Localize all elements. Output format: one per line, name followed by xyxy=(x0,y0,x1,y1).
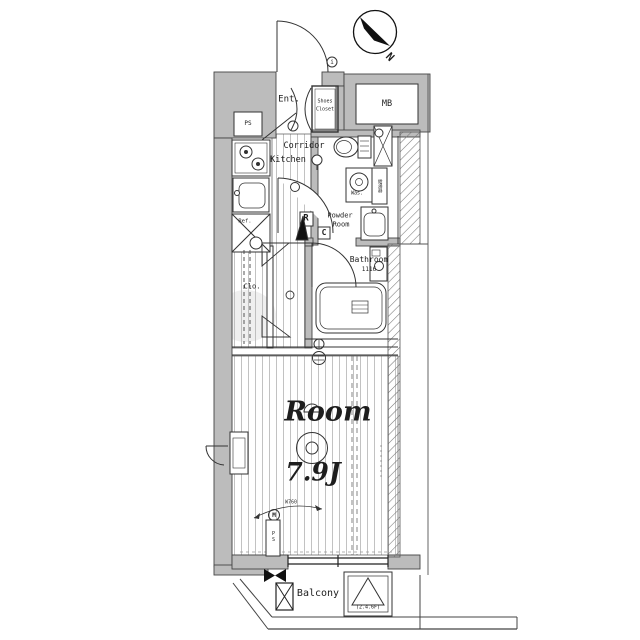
bathroom-label: Bathroom xyxy=(350,256,389,264)
box-r-letter: R xyxy=(303,215,308,224)
sink xyxy=(239,183,265,208)
box-c-letter: C xyxy=(322,229,327,237)
room-size-label: 7.9J xyxy=(285,460,340,485)
party-mark xyxy=(275,569,286,582)
bath-counter xyxy=(370,247,387,281)
hatched-wall xyxy=(388,132,420,557)
meter-box-label: MB xyxy=(382,100,392,109)
pipe-shaft-top-label: PS xyxy=(244,121,251,127)
water-heater-label: 給湯器 xyxy=(377,179,382,193)
intercom-letter: i xyxy=(330,60,334,66)
corridor-label: Corridor xyxy=(284,142,325,151)
bathtub xyxy=(316,283,386,333)
powder-room-label-1: Powder xyxy=(327,213,352,220)
light-symbol xyxy=(312,155,322,165)
pipe-shaft-bottom-label: PS xyxy=(271,531,276,543)
faucet-icon xyxy=(235,191,240,196)
fan-icon xyxy=(375,129,383,137)
dimension-note: W760 xyxy=(285,501,297,506)
kitchen-label: Kitchen xyxy=(270,156,306,165)
floor-plan: N Ent. Shoes Closet MB PS Corridor Kitch… xyxy=(0,0,640,640)
refrigerator-label: Ref. xyxy=(238,219,251,225)
balcony-label: Balcony xyxy=(297,589,339,599)
folding-door xyxy=(305,88,311,130)
entrance-door-arc xyxy=(277,21,328,72)
bathroom-size-label: 1116 xyxy=(362,267,376,273)
party-mark xyxy=(264,569,275,582)
room-label: Room xyxy=(284,399,371,426)
balcony-window xyxy=(288,555,388,567)
floor-plan-drawing xyxy=(0,0,640,640)
meter-letter: M xyxy=(272,513,276,519)
light-symbol xyxy=(291,183,300,192)
shoes-closet-label-1: Shoes xyxy=(317,100,332,105)
evac-hatch-triangle xyxy=(352,578,384,605)
powder-room-label-2: Room xyxy=(333,222,350,229)
toilet-tank xyxy=(358,136,371,158)
tub-cover xyxy=(352,301,368,313)
closet-label: Clo. xyxy=(244,284,261,291)
washer-label: Was. xyxy=(351,192,363,197)
basin xyxy=(364,213,385,236)
evac-hatch-floors-label: (2.4.6F) xyxy=(356,606,380,611)
bath-door-arc xyxy=(312,243,356,287)
faucet-icon xyxy=(372,209,376,213)
shoes-closet-label-2: Closet xyxy=(316,108,334,113)
compass xyxy=(354,11,397,54)
entrance-label: Ent. xyxy=(278,96,300,105)
